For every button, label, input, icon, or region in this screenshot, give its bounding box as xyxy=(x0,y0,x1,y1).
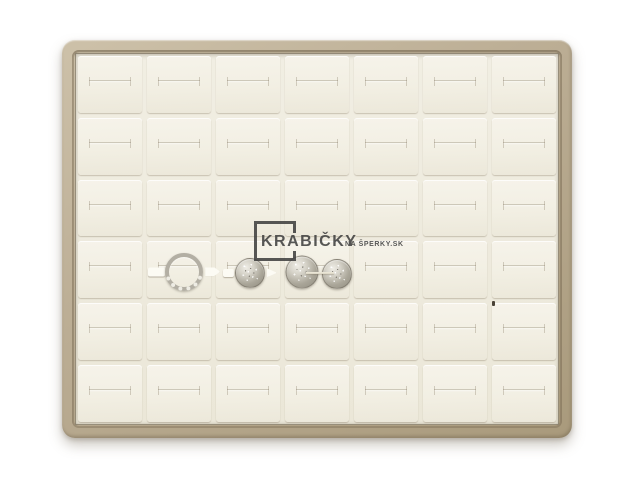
ring-slot-cell xyxy=(147,303,211,360)
ring-slot-cell xyxy=(492,365,556,422)
ring-slot-cell xyxy=(147,365,211,422)
ring-slot-cell xyxy=(78,56,142,113)
ring-slot-slit xyxy=(503,327,545,330)
ring-slot-cell xyxy=(216,56,280,113)
ring-slot-cell xyxy=(492,56,556,113)
ring-slot-cell xyxy=(492,241,556,298)
ring-slot-cell xyxy=(78,180,142,237)
ring-slot-slit xyxy=(365,204,407,207)
ring-slot-slit xyxy=(89,265,131,268)
ring-slot-cell xyxy=(78,365,142,422)
ring-slot-cell xyxy=(216,180,280,237)
ring-slot-slit xyxy=(365,142,407,145)
ring-slot-cell xyxy=(354,241,418,298)
ring-slot-slit xyxy=(365,389,407,392)
ring-slot-cell xyxy=(423,241,487,298)
ring-slot-cell xyxy=(354,365,418,422)
ring-slot-slit xyxy=(296,389,338,392)
ring-slot-slit xyxy=(158,142,200,145)
ring-tray-frame xyxy=(62,40,572,438)
ring-slot-slit xyxy=(434,389,476,392)
ring-slot-cell xyxy=(354,303,418,360)
ring-slot-slit xyxy=(434,204,476,207)
ring-slot-cell xyxy=(147,56,211,113)
ring-slot-slit xyxy=(434,80,476,83)
ring-slot-cell xyxy=(285,365,349,422)
ring-slot-cell xyxy=(147,118,211,175)
product-photo: KRABIČKY NA ŠPERKY.SK xyxy=(0,0,640,480)
ring-slot-cell xyxy=(423,56,487,113)
ring-slot-cell xyxy=(285,56,349,113)
ring-slot-slit xyxy=(89,142,131,145)
ring-slot-slit xyxy=(227,80,269,83)
ring-slot-slit xyxy=(434,327,476,330)
ring-slot-slit xyxy=(158,204,200,207)
ring-slot-slit xyxy=(227,204,269,207)
ring-slot-cell xyxy=(216,365,280,422)
ring-slot-slit xyxy=(227,327,269,330)
ring-slot-cell xyxy=(216,118,280,175)
ring-slot-slit xyxy=(158,327,200,330)
ring-slot-slit xyxy=(158,265,200,268)
ring-slot-slit xyxy=(503,265,545,268)
ring-slot-cell xyxy=(78,241,142,298)
ring-slot-slit xyxy=(503,80,545,83)
ring-slot-cell xyxy=(285,180,349,237)
ring-slot-slit xyxy=(89,327,131,330)
ring-slot-slit xyxy=(503,142,545,145)
ring-slot-slit xyxy=(89,80,131,83)
ring-slot-slit xyxy=(296,327,338,330)
ring-slot-slit xyxy=(89,389,131,392)
ring-slot-cell xyxy=(216,303,280,360)
ring-slot-cell xyxy=(354,180,418,237)
ring-slot-cell xyxy=(216,241,280,298)
ring-slot-cell xyxy=(423,365,487,422)
ring-slot-slit xyxy=(434,265,476,268)
ring-slot-slit xyxy=(296,265,338,268)
ring-slot-cell xyxy=(492,118,556,175)
ring-slot-slit xyxy=(365,265,407,268)
ring-slot-cell xyxy=(78,303,142,360)
ring-slot-slit xyxy=(227,142,269,145)
ring-slot-cell xyxy=(354,56,418,113)
ring-slot-cell xyxy=(147,180,211,237)
ring-slot-slit xyxy=(434,142,476,145)
ring-slot-slit xyxy=(227,389,269,392)
ring-slot-slit xyxy=(365,80,407,83)
ring-slot-cell xyxy=(423,303,487,360)
ring-slot-slit xyxy=(503,204,545,207)
ring-slot-cell xyxy=(285,241,349,298)
ring-slot-cell xyxy=(78,118,142,175)
ring-slot-cell xyxy=(492,180,556,237)
ring-slot-slit xyxy=(296,80,338,83)
ring-slot-slit xyxy=(503,389,545,392)
ring-slot-cell xyxy=(492,303,556,360)
ring-slot-slit xyxy=(89,204,131,207)
ring-slot-slit xyxy=(158,389,200,392)
ring-slot-slit xyxy=(296,204,338,207)
ring-slot-grid xyxy=(75,53,559,425)
ring-slot-slit xyxy=(158,80,200,83)
ring-slot-cell xyxy=(423,118,487,175)
ring-slot-slit xyxy=(227,265,269,268)
ring-slot-slit xyxy=(365,327,407,330)
ring-slot-cell xyxy=(354,118,418,175)
ring-slot-cell xyxy=(285,303,349,360)
ring-slot-slit xyxy=(296,142,338,145)
ring-slot-cell xyxy=(423,180,487,237)
ring-slot-cell xyxy=(147,241,211,298)
ring-slot-cell xyxy=(285,118,349,175)
